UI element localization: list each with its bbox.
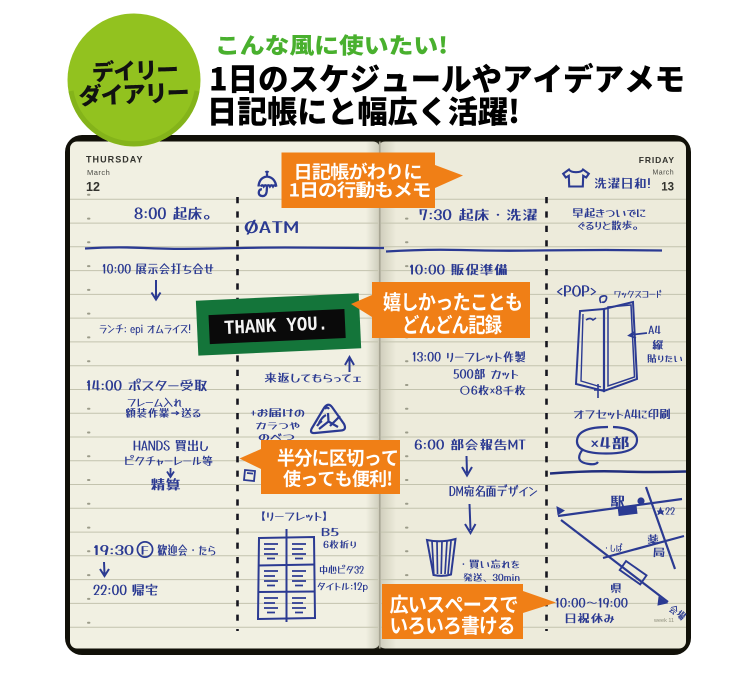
- svg-text:FRIDAY: FRIDAY: [639, 155, 675, 165]
- svg-text:THANK YOU.: THANK YOU.: [224, 313, 329, 341]
- svg-text:13: 13: [661, 182, 674, 194]
- svg-text:12: 12: [86, 180, 100, 194]
- svg-text:March: March: [653, 170, 674, 177]
- svg-text:THURSDAY: THURSDAY: [86, 155, 144, 165]
- svg-text:week 11: week 11: [653, 618, 674, 624]
- svg-text:March: March: [87, 168, 110, 177]
